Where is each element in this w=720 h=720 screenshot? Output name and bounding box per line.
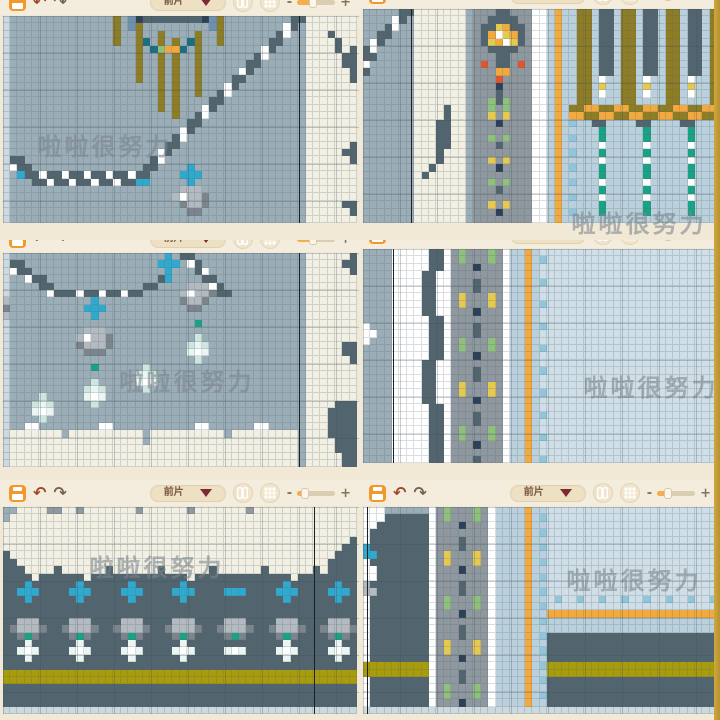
- stitch-cell[interactable]: [414, 46, 421, 53]
- stitch-cell[interactable]: [342, 445, 349, 452]
- stitch-cell[interactable]: [10, 305, 17, 312]
- stitch-cell[interactable]: [466, 216, 473, 223]
- stitch-cell[interactable]: [584, 76, 591, 83]
- stitch-cell[interactable]: [342, 156, 349, 163]
- stitch-cell[interactable]: [62, 416, 69, 423]
- stitch-cell[interactable]: [99, 393, 106, 400]
- stitch-cell[interactable]: [76, 186, 83, 193]
- stitch-cell[interactable]: [25, 334, 32, 341]
- stitch-cell[interactable]: [99, 31, 106, 38]
- stitch-cell[interactable]: [306, 90, 313, 97]
- stitch-cell[interactable]: [688, 338, 695, 345]
- stitch-cell[interactable]: [702, 24, 709, 31]
- stitch-cell[interactable]: [363, 39, 370, 46]
- stitch-cell[interactable]: [306, 171, 313, 178]
- stitch-cell[interactable]: [466, 301, 473, 308]
- stitch-cell[interactable]: [3, 460, 10, 467]
- stitch-cell[interactable]: [673, 9, 680, 16]
- stitch-cell[interactable]: [150, 149, 157, 156]
- stitch-cell[interactable]: [414, 301, 421, 308]
- stitch-cell[interactable]: [688, 293, 695, 300]
- stitch-cell[interactable]: [91, 134, 98, 141]
- stitch-cell[interactable]: [555, 256, 562, 263]
- stitch-cell[interactable]: [143, 179, 150, 186]
- stitch-cell[interactable]: [10, 356, 17, 363]
- stitch-cell[interactable]: [328, 75, 335, 82]
- stitch-cell[interactable]: [459, 9, 466, 16]
- stitch-cell[interactable]: [76, 253, 83, 260]
- stitch-cell[interactable]: [525, 105, 532, 112]
- stitch-cell[interactable]: [291, 275, 298, 282]
- stitch-cell[interactable]: [291, 401, 298, 408]
- stitch-cell[interactable]: [25, 105, 32, 112]
- stitch-cell[interactable]: [688, 9, 695, 16]
- stitch-cell[interactable]: [106, 97, 113, 104]
- stitch-cell[interactable]: [209, 364, 216, 371]
- stitch-cell[interactable]: [525, 216, 532, 223]
- stitch-cell[interactable]: [150, 164, 157, 171]
- stitch-cell[interactable]: [584, 112, 591, 119]
- stitch-cell[interactable]: [276, 134, 283, 141]
- stitch-cell[interactable]: [91, 193, 98, 200]
- stitch-cell[interactable]: [76, 453, 83, 460]
- stitch-cell[interactable]: [39, 349, 46, 356]
- stitch-cell[interactable]: [422, 338, 429, 345]
- stitch-cell[interactable]: [643, 112, 650, 119]
- stitch-cell[interactable]: [39, 112, 46, 119]
- stitch-cell[interactable]: [261, 349, 268, 356]
- stitch-cell[interactable]: [246, 201, 253, 208]
- stitch-cell[interactable]: [239, 297, 246, 304]
- stitch-cell[interactable]: [246, 193, 253, 200]
- stitch-cell[interactable]: [429, 338, 436, 345]
- stitch-cell[interactable]: [518, 286, 525, 293]
- stitch-cell[interactable]: [422, 53, 429, 60]
- stitch-cell[interactable]: [496, 127, 503, 134]
- stitch-cell[interactable]: [540, 301, 547, 308]
- stitch-cell[interactable]: [17, 260, 24, 267]
- stitch-cell[interactable]: [202, 349, 209, 356]
- stitch-cell[interactable]: [466, 201, 473, 208]
- stitch-cell[interactable]: [599, 90, 606, 97]
- stitch-cell[interactable]: [399, 279, 406, 286]
- stitch-cell[interactable]: [481, 264, 488, 271]
- stitch-cell[interactable]: [555, 105, 562, 112]
- stitch-cell[interactable]: [224, 445, 231, 452]
- stitch-cell[interactable]: [47, 386, 54, 393]
- stitch-cell[interactable]: [246, 349, 253, 356]
- stitch-cell[interactable]: [459, 330, 466, 337]
- stitch-cell[interactable]: [313, 38, 320, 45]
- stitch-cell[interactable]: [422, 316, 429, 323]
- stitch-cell[interactable]: [232, 16, 239, 23]
- stitch-cell[interactable]: [298, 164, 305, 171]
- stitch-cell[interactable]: [370, 9, 377, 16]
- stitch-cell[interactable]: [555, 308, 562, 315]
- stitch-cell[interactable]: [599, 293, 606, 300]
- stitch-cell[interactable]: [510, 157, 517, 164]
- stitch-cell[interactable]: [17, 31, 24, 38]
- stitch-cell[interactable]: [399, 68, 406, 75]
- stitch-cell[interactable]: [335, 416, 342, 423]
- stitch-cell[interactable]: [306, 305, 313, 312]
- stitch-cell[interactable]: [195, 275, 202, 282]
- stitch-cell[interactable]: [136, 216, 143, 223]
- stitch-cell[interactable]: [370, 53, 377, 60]
- stitch-cell[interactable]: [224, 356, 231, 363]
- stitch-cell[interactable]: [254, 349, 261, 356]
- stitch-cell[interactable]: [121, 438, 128, 445]
- stitch-cell[interactable]: [562, 264, 569, 271]
- stitch-cell[interactable]: [283, 149, 290, 156]
- stitch-cell[interactable]: [32, 275, 39, 282]
- stitch-cell[interactable]: [562, 135, 569, 142]
- stitch-cell[interactable]: [532, 323, 539, 330]
- stitch-cell[interactable]: [399, 61, 406, 68]
- stitch-cell[interactable]: [47, 112, 54, 119]
- stitch-cell[interactable]: [99, 105, 106, 112]
- stitch-cell[interactable]: [136, 75, 143, 82]
- stitch-cell[interactable]: [128, 179, 135, 186]
- stitch-cell[interactable]: [10, 320, 17, 327]
- stitch-cell[interactable]: [320, 364, 327, 371]
- stitch-cell[interactable]: [143, 349, 150, 356]
- stitch-cell[interactable]: [91, 260, 98, 267]
- stitch-cell[interactable]: [165, 297, 172, 304]
- stitch-cell[interactable]: [377, 201, 384, 208]
- stitch-cell[interactable]: [702, 149, 709, 156]
- stitch-cell[interactable]: [209, 193, 216, 200]
- stitch-cell[interactable]: [510, 279, 517, 286]
- stitch-cell[interactable]: [466, 286, 473, 293]
- stitch-cell[interactable]: [695, 286, 702, 293]
- stitch-cell[interactable]: [76, 46, 83, 53]
- stitch-cell[interactable]: [547, 293, 554, 300]
- stitch-cell[interactable]: [695, 9, 702, 16]
- stitch-cell[interactable]: [702, 135, 709, 142]
- stitch-cell[interactable]: [261, 216, 268, 223]
- stitch-cell[interactable]: [39, 149, 46, 156]
- stitch-cell[interactable]: [143, 356, 150, 363]
- stitch-cell[interactable]: [121, 401, 128, 408]
- stitch-cell[interactable]: [298, 312, 305, 319]
- stitch-cell[interactable]: [422, 330, 429, 337]
- stitch-cell[interactable]: [136, 430, 143, 437]
- stitch-cell[interactable]: [91, 430, 98, 437]
- stitch-cell[interactable]: [246, 127, 253, 134]
- stitch-cell[interactable]: [328, 83, 335, 90]
- stitch-cell[interactable]: [283, 31, 290, 38]
- stitch-cell[interactable]: [106, 164, 113, 171]
- stitch-cell[interactable]: [143, 379, 150, 386]
- stitch-cell[interactable]: [629, 316, 636, 323]
- stitch-cell[interactable]: [84, 134, 91, 141]
- stitch-cell[interactable]: [503, 308, 510, 315]
- stitch-cell[interactable]: [407, 345, 414, 352]
- stitch-cell[interactable]: [17, 356, 24, 363]
- stitch-cell[interactable]: [629, 105, 636, 112]
- stitch-cell[interactable]: [555, 216, 562, 223]
- stitch-cell[interactable]: [76, 31, 83, 38]
- stitch-cell[interactable]: [629, 90, 636, 97]
- stitch-cell[interactable]: [488, 360, 495, 367]
- stitch-cell[interactable]: [69, 112, 76, 119]
- stitch-cell[interactable]: [350, 38, 357, 45]
- stitch-cell[interactable]: [113, 430, 120, 437]
- stitch-cell[interactable]: [532, 112, 539, 119]
- stitch-cell[interactable]: [320, 408, 327, 415]
- stitch-cell[interactable]: [313, 216, 320, 223]
- stitch-cell[interactable]: [239, 320, 246, 327]
- stitch-cell[interactable]: [91, 186, 98, 193]
- stitch-cell[interactable]: [276, 283, 283, 290]
- stitch-cell[interactable]: [399, 157, 406, 164]
- stitch-cell[interactable]: [239, 142, 246, 149]
- stitch-cell[interactable]: [599, 83, 606, 90]
- stitch-cell[interactable]: [451, 345, 458, 352]
- stitch-cell[interactable]: [25, 253, 32, 260]
- stitch-cell[interactable]: [209, 438, 216, 445]
- stitch-cell[interactable]: [17, 327, 24, 334]
- stitch-cell[interactable]: [254, 75, 261, 82]
- stitch-cell[interactable]: [180, 83, 187, 90]
- stitch-cell[interactable]: [466, 157, 473, 164]
- stitch-cell[interactable]: [651, 120, 658, 127]
- stitch-cell[interactable]: [62, 275, 69, 282]
- stitch-cell[interactable]: [276, 445, 283, 452]
- stitch-cell[interactable]: [269, 46, 276, 53]
- stitch-cell[interactable]: [298, 356, 305, 363]
- stitch-cell[interactable]: [370, 83, 377, 90]
- stitch-cell[interactable]: [306, 208, 313, 215]
- stitch-cell[interactable]: [113, 356, 120, 363]
- stitch-cell[interactable]: [350, 297, 357, 304]
- stitch-cell[interactable]: [10, 460, 17, 467]
- stitch-cell[interactable]: [246, 142, 253, 149]
- stitch-cell[interactable]: [39, 127, 46, 134]
- stitch-cell[interactable]: [414, 16, 421, 23]
- stitch-cell[interactable]: [473, 46, 480, 53]
- stitch-cell[interactable]: [187, 445, 194, 452]
- stitch-cell[interactable]: [569, 68, 576, 75]
- stitch-cell[interactable]: [673, 216, 680, 223]
- zoom-slider[interactable]: [297, 0, 335, 5]
- stitch-cell[interactable]: [385, 293, 392, 300]
- stitch-cell[interactable]: [466, 149, 473, 156]
- stitch-cell[interactable]: [306, 179, 313, 186]
- stitch-cell[interactable]: [436, 293, 443, 300]
- stitch-cell[interactable]: [335, 83, 342, 90]
- stitch-cell[interactable]: [370, 24, 377, 31]
- stitch-cell[interactable]: [414, 9, 421, 16]
- stitch-cell[interactable]: [47, 68, 54, 75]
- stitch-cell[interactable]: [592, 293, 599, 300]
- stitch-cell[interactable]: [429, 352, 436, 359]
- stitch-cell[interactable]: [298, 297, 305, 304]
- stitch-cell[interactable]: [106, 386, 113, 393]
- stitch-cell[interactable]: [429, 142, 436, 149]
- stitch-cell[interactable]: [298, 16, 305, 23]
- stitch-cell[interactable]: [209, 142, 216, 149]
- stitch-cell[interactable]: [76, 68, 83, 75]
- stitch-cell[interactable]: [577, 90, 584, 97]
- stitch-cell[interactable]: [488, 345, 495, 352]
- stitch-cell[interactable]: [342, 416, 349, 423]
- stitch-cell[interactable]: [136, 127, 143, 134]
- stitch-cell[interactable]: [283, 342, 290, 349]
- stitch-cell[interactable]: [399, 105, 406, 112]
- stitch-cell[interactable]: [313, 134, 320, 141]
- stitch-cell[interactable]: [562, 112, 569, 119]
- stitch-cell[interactable]: [496, 194, 503, 201]
- stitch-cell[interactable]: [451, 186, 458, 193]
- stitch-cell[interactable]: [342, 68, 349, 75]
- stitch-cell[interactable]: [377, 53, 384, 60]
- stitch-cell[interactable]: [399, 308, 406, 315]
- stitch-cell[interactable]: [76, 312, 83, 319]
- stitch-cell[interactable]: [525, 39, 532, 46]
- stitch-cell[interactable]: [254, 379, 261, 386]
- stitch-cell[interactable]: [525, 201, 532, 208]
- stitch-cell[interactable]: [320, 142, 327, 149]
- stitch-cell[interactable]: [283, 164, 290, 171]
- stitch-cell[interactable]: [385, 367, 392, 374]
- stitch-cell[interactable]: [385, 264, 392, 271]
- stitch-cell[interactable]: [525, 172, 532, 179]
- stitch-cell[interactable]: [143, 53, 150, 60]
- stitch-cell[interactable]: [261, 416, 268, 423]
- stitch-cell[interactable]: [695, 31, 702, 38]
- stitch-cell[interactable]: [246, 268, 253, 275]
- stitch-cell[interactable]: [436, 352, 443, 359]
- stitch-cell[interactable]: [261, 46, 268, 53]
- stitch-cell[interactable]: [392, 135, 399, 142]
- stitch-cell[interactable]: [629, 53, 636, 60]
- stitch-cell[interactable]: [25, 90, 32, 97]
- stitch-cell[interactable]: [62, 186, 69, 193]
- stitch-cell[interactable]: [306, 149, 313, 156]
- stitch-cell[interactable]: [165, 393, 172, 400]
- stitch-cell[interactable]: [180, 364, 187, 371]
- stitch-cell[interactable]: [113, 46, 120, 53]
- stitch-cell[interactable]: [172, 268, 179, 275]
- stitch-cell[interactable]: [510, 338, 517, 345]
- stitch-cell[interactable]: [422, 112, 429, 119]
- stitch-cell[interactable]: [510, 24, 517, 31]
- stitch-cell[interactable]: [165, 453, 172, 460]
- stitch-cell[interactable]: [232, 83, 239, 90]
- stitch-cell[interactable]: [202, 297, 209, 304]
- stitch-cell[interactable]: [555, 53, 562, 60]
- stitch-cell[interactable]: [444, 46, 451, 53]
- stitch-cell[interactable]: [165, 75, 172, 82]
- stitch-cell[interactable]: [562, 46, 569, 53]
- stitch-cell[interactable]: [429, 201, 436, 208]
- stitch-cell[interactable]: [261, 134, 268, 141]
- stitch-cell[interactable]: [481, 149, 488, 156]
- stitch-cell[interactable]: [636, 172, 643, 179]
- stitch-cell[interactable]: [261, 149, 268, 156]
- stitch-cell[interactable]: [429, 157, 436, 164]
- stitch-cell[interactable]: [246, 327, 253, 334]
- stitch-cell[interactable]: [17, 127, 24, 134]
- stitch-cell[interactable]: [10, 290, 17, 297]
- stitch-cell[interactable]: [555, 127, 562, 134]
- stitch-cell[interactable]: [363, 264, 370, 271]
- stitch-cell[interactable]: [377, 39, 384, 46]
- stitch-cell[interactable]: [377, 16, 384, 23]
- stitch-cell[interactable]: [121, 430, 128, 437]
- stitch-cell[interactable]: [555, 194, 562, 201]
- stitch-cell[interactable]: [239, 105, 246, 112]
- stitch-cell[interactable]: [328, 60, 335, 67]
- stitch-cell[interactable]: [614, 338, 621, 345]
- stitch-cell[interactable]: [466, 16, 473, 23]
- stitch-cell[interactable]: [195, 408, 202, 415]
- stitch-cell[interactable]: [666, 90, 673, 97]
- stitch-cell[interactable]: [172, 312, 179, 319]
- stitch-cell[interactable]: [254, 97, 261, 104]
- stitch-cell[interactable]: [209, 283, 216, 290]
- stitch-cell[interactable]: [209, 179, 216, 186]
- stitch-cell[interactable]: [562, 9, 569, 16]
- stitch-cell[interactable]: [518, 149, 525, 156]
- stitch-cell[interactable]: [666, 24, 673, 31]
- stitch-cell[interactable]: [636, 316, 643, 323]
- stitch-cell[interactable]: [328, 379, 335, 386]
- stitch-cell[interactable]: [540, 127, 547, 134]
- stitch-cell[interactable]: [187, 171, 194, 178]
- stitch-cell[interactable]: [10, 83, 17, 90]
- stitch-cell[interactable]: [488, 127, 495, 134]
- stitch-cell[interactable]: [76, 408, 83, 415]
- stitch-cell[interactable]: [459, 194, 466, 201]
- stitch-cell[interactable]: [414, 316, 421, 323]
- stitch-cell[interactable]: [473, 127, 480, 134]
- stitch-cell[interactable]: [702, 293, 709, 300]
- stitch-cell[interactable]: [695, 256, 702, 263]
- stitch-cell[interactable]: [621, 142, 628, 149]
- stitch-cell[interactable]: [69, 60, 76, 67]
- stitch-cell[interactable]: [3, 401, 10, 408]
- stitch-cell[interactable]: [451, 172, 458, 179]
- stitch-cell[interactable]: [224, 193, 231, 200]
- stitch-cell[interactable]: [121, 149, 128, 156]
- stitch-cell[interactable]: [407, 53, 414, 60]
- stitch-cell[interactable]: [76, 83, 83, 90]
- stitch-cell[interactable]: [363, 216, 370, 223]
- stitch-cell[interactable]: [414, 179, 421, 186]
- stitch-cell[interactable]: [209, 83, 216, 90]
- stitch-cell[interactable]: [407, 9, 414, 16]
- stitch-cell[interactable]: [136, 53, 143, 60]
- stitch-cell[interactable]: [306, 327, 313, 334]
- stitch-cell[interactable]: [363, 209, 370, 216]
- stitch-cell[interactable]: [569, 16, 576, 23]
- stitch-cell[interactable]: [680, 360, 687, 367]
- stitch-cell[interactable]: [688, 120, 695, 127]
- stitch-cell[interactable]: [599, 76, 606, 83]
- stitch-cell[interactable]: [614, 172, 621, 179]
- stitch-cell[interactable]: [363, 135, 370, 142]
- stitch-cell[interactable]: [473, 105, 480, 112]
- stitch-cell[interactable]: [584, 179, 591, 186]
- stitch-cell[interactable]: [25, 268, 32, 275]
- stitch-cell[interactable]: [136, 16, 143, 23]
- stitch-cell[interactable]: [444, 293, 451, 300]
- stitch-cell[interactable]: [328, 68, 335, 75]
- stitch-cell[interactable]: [306, 16, 313, 23]
